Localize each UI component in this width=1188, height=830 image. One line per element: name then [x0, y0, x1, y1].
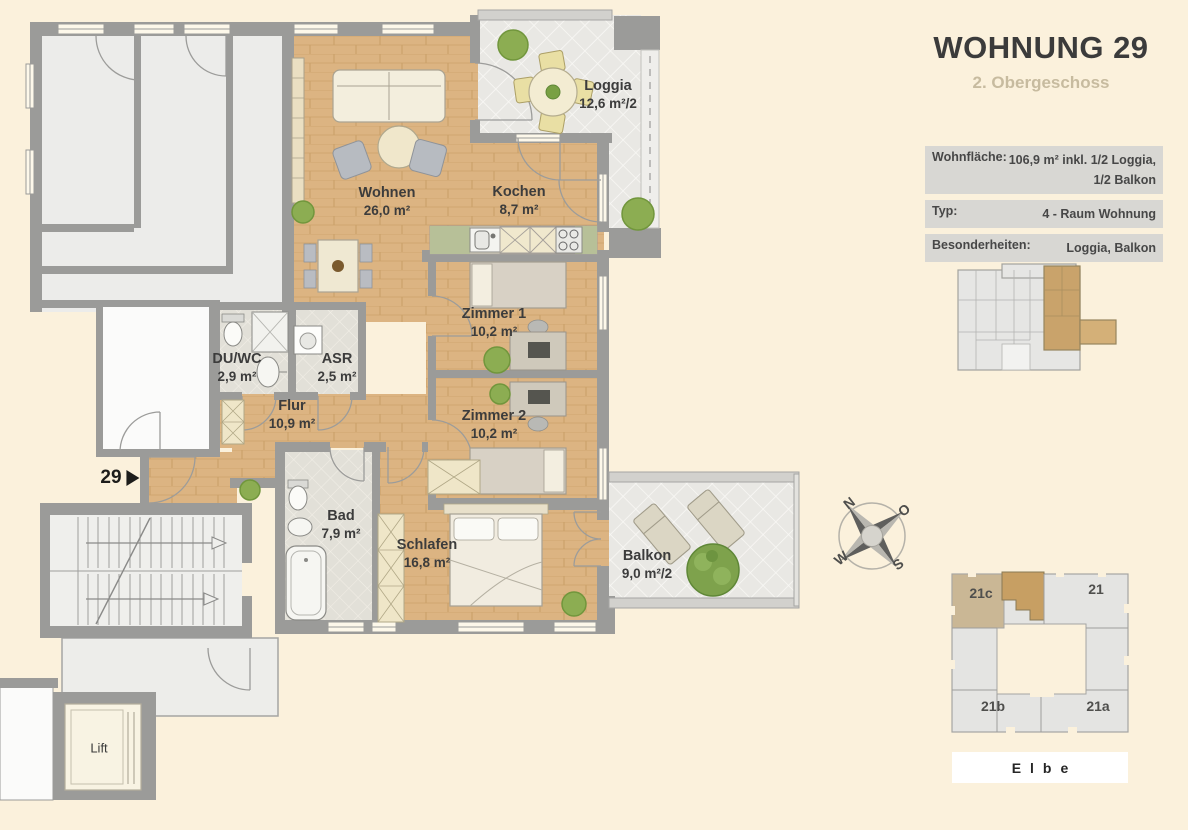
room-label-loggia: Loggia12,6 m²/2 [579, 78, 637, 112]
unit-direction-arrow-icon [127, 470, 140, 486]
room-label-zimmer1: Zimmer 110,2 m² [462, 306, 526, 340]
river-label: Elbe [1003, 760, 1078, 776]
room-label-duwc: DU/WC2,9 m² [212, 351, 261, 385]
page-subtitle: 2. Obergeschoss [916, 73, 1166, 93]
info-row-typ: Typ: 4 - Raum Wohnung [925, 200, 1163, 228]
site-label-21a: 21a [1086, 698, 1109, 714]
room-label-flur: Flur10,9 m² [269, 398, 316, 432]
river-label-bar: Elbe [952, 752, 1128, 783]
unit-number: 29 [100, 467, 121, 489]
info-label: Besonderheiten: [932, 238, 1031, 258]
room-label-zimmer2: Zimmer 210,2 m² [462, 408, 526, 442]
room-label-wohnen: Wohnen26,0 m² [359, 185, 416, 219]
room-label-kochen: Kochen8,7 m² [492, 184, 545, 218]
key-plan [958, 264, 1116, 370]
compass-rose [816, 480, 928, 592]
lift-label: Lift [90, 741, 107, 756]
site-label-21: 21 [1088, 581, 1104, 597]
info-label: Typ: [932, 204, 957, 224]
floor-plan-graphic [0, 0, 1188, 830]
info-row-wohnflaeche: Wohnfläche: 106,9 m² inkl. 1/2 Loggia, 1… [925, 146, 1163, 194]
page-title: WOHNUNG 29 [916, 30, 1166, 66]
room-label-balkon: Balkon9,0 m²/2 [622, 548, 672, 582]
site-label-21c: 21c [969, 585, 992, 601]
unit-marker: 29 [100, 467, 139, 489]
room-label-bad: Bad7,9 m² [321, 508, 360, 542]
room-label-schlafen: Schlafen16,8 m² [397, 537, 457, 571]
header: WOHNUNG 29 2. Obergeschoss [916, 30, 1166, 93]
info-row-besonderheiten: Besonderheiten: Loggia, Balkon [925, 234, 1163, 262]
info-table: Wohnfläche: 106,9 m² inkl. 1/2 Loggia, 1… [925, 146, 1163, 268]
info-value: Loggia, Balkon [1066, 238, 1156, 258]
room-label-asr: ASR2,5 m² [317, 351, 356, 385]
site-label-21b: 21b [981, 698, 1005, 714]
page: WOHNUNG 29 2. Obergeschoss Wohnfläche: 1… [0, 0, 1188, 830]
info-value: 106,9 m² inkl. 1/2 Loggia, 1/2 Balkon [1009, 150, 1156, 190]
info-label: Wohnfläche: [932, 150, 1007, 190]
info-value: 4 - Raum Wohnung [1042, 204, 1156, 224]
